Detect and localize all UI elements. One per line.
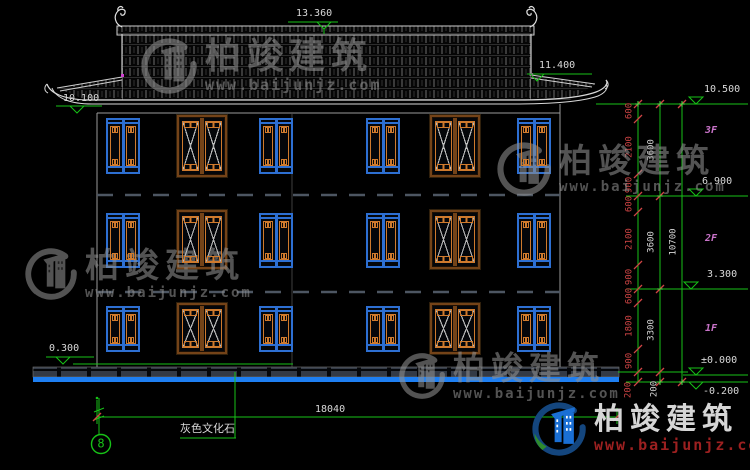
dim-mid: 3600 xyxy=(648,231,657,253)
lattice-window-brown xyxy=(430,115,480,177)
ridge-ornament-left-icon xyxy=(115,7,125,27)
dim-inner: 900 xyxy=(626,353,635,369)
dim-inner: 600 xyxy=(626,288,635,304)
lattice-window-blue xyxy=(106,118,140,174)
dim-inner: 2100 xyxy=(626,136,635,158)
ridge-elevation: 13.360 xyxy=(296,9,332,19)
left-eave-elevation: 10.100 xyxy=(63,94,99,104)
dim-inner: 900 xyxy=(626,177,635,193)
lattice-window-blue xyxy=(517,213,551,268)
elevation-marker-icon xyxy=(689,368,703,375)
elevation-marker-icon xyxy=(70,106,84,113)
dim-mid: 3600 xyxy=(648,139,657,161)
floor-label-3f: 3F xyxy=(705,126,717,136)
floor-label-2f: 2F xyxy=(705,234,717,244)
material-label: 灰色文化石 xyxy=(180,423,235,434)
lattice-window-blue xyxy=(366,213,400,268)
lattice-window-blue xyxy=(106,213,140,268)
roof xyxy=(45,7,608,104)
level-3300: 3.300 xyxy=(707,270,737,280)
level-m0200: -0.200 xyxy=(703,387,739,397)
level-0000: ±0.000 xyxy=(701,356,737,366)
dim-inner: 1800 xyxy=(626,315,635,337)
right-eave-elevation: 11.400 xyxy=(539,61,575,71)
lattice-window-blue xyxy=(259,118,293,174)
level-10500: 10.500 xyxy=(704,85,740,95)
ground-line xyxy=(33,377,619,382)
dim-inner: 900 xyxy=(626,269,635,285)
floor-label-1f: 1F xyxy=(705,324,717,334)
level-6900: 6.900 xyxy=(702,177,732,187)
lattice-window-blue xyxy=(259,306,293,352)
dim-inner: 200 xyxy=(625,382,634,398)
lattice-window-brown xyxy=(430,210,480,269)
dim-inner: 2100 xyxy=(626,228,635,250)
total-width-dimension: 18040 xyxy=(315,405,345,415)
plinth-and-ground xyxy=(33,367,619,382)
facade-walls xyxy=(97,104,560,367)
dim-mid: 200 xyxy=(651,381,660,397)
lattice-window-brown xyxy=(177,303,227,354)
dim-outer: 10700 xyxy=(670,228,679,255)
plinth-elevation: 0.300 xyxy=(49,344,79,354)
axis-label: 8 xyxy=(97,437,104,449)
lattice-window-blue xyxy=(106,306,140,352)
ridge-ornament-right-icon xyxy=(527,7,537,27)
elevation-drawing: 13.360 11.400 10.100 0.300 10.500 6.900 … xyxy=(0,0,750,470)
dim-mid: 3300 xyxy=(648,319,657,341)
lattice-window-blue xyxy=(517,118,551,174)
lattice-window-blue xyxy=(517,306,551,352)
elevation-marker-icon xyxy=(689,382,703,389)
elevation-marker-icon xyxy=(689,189,703,196)
lattice-window-blue xyxy=(366,306,400,352)
lattice-window-brown xyxy=(177,210,227,269)
elevation-marker-icon xyxy=(684,282,698,289)
lattice-window-blue xyxy=(259,213,293,268)
dim-inner: 600 xyxy=(626,103,635,119)
elevation-marker-icon xyxy=(56,357,70,364)
lattice-window-brown xyxy=(430,303,480,354)
lattice-window-blue xyxy=(366,118,400,174)
dim-inner: 600 xyxy=(626,196,635,212)
elevation-marker-icon xyxy=(689,97,703,104)
lattice-window-brown xyxy=(177,115,227,177)
